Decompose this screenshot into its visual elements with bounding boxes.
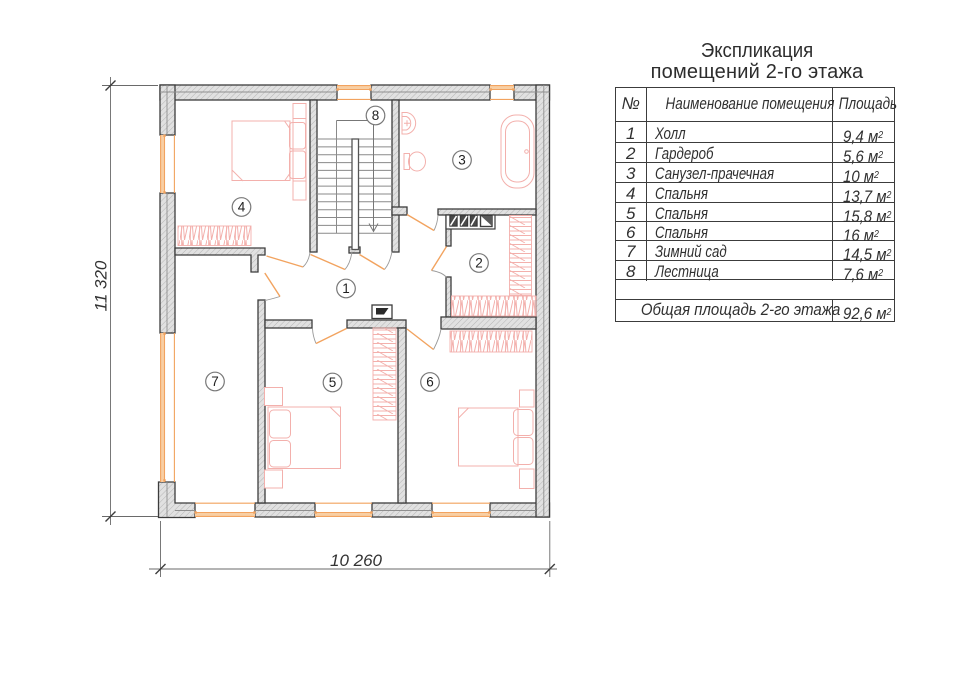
svg-text:11 320: 11 320: [92, 260, 111, 311]
svg-text:10 260: 10 260: [330, 551, 383, 570]
svg-text:6: 6: [426, 375, 434, 390]
svg-text:2: 2: [475, 256, 483, 271]
svg-text:1: 1: [342, 281, 350, 296]
svg-text:3: 3: [458, 153, 466, 168]
svg-text:8: 8: [372, 108, 380, 123]
svg-text:4: 4: [238, 200, 246, 215]
svg-text:7: 7: [211, 374, 219, 389]
svg-text:5: 5: [329, 375, 337, 390]
